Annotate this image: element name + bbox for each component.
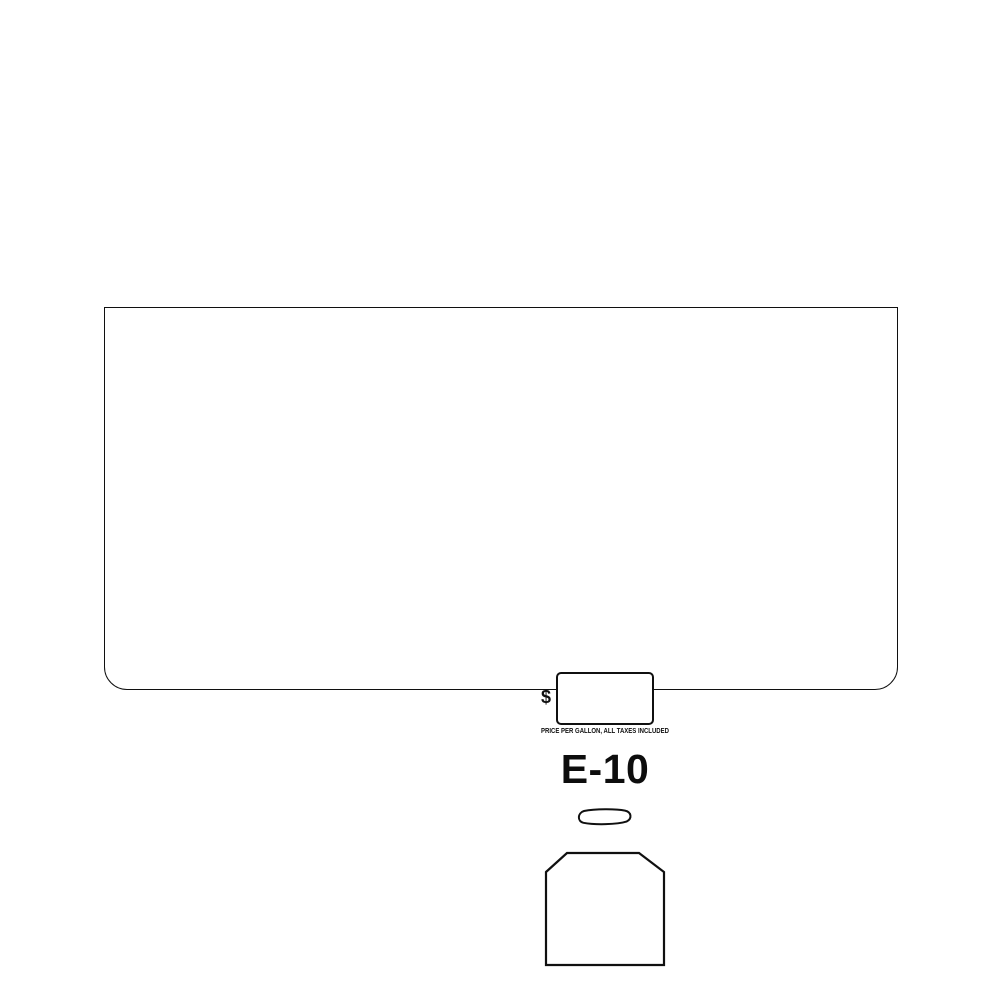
product-drawing-canvas: $ PRICE PER GALLON, ALL TAXES INCLUDED E… (0, 0, 1000, 1000)
pushbutton-cutout-icon (571, 804, 637, 830)
bezel-outline: $ PRICE PER GALLON, ALL TAXES INCLUDED E… (104, 307, 898, 690)
nozzle-boot-cutout-icon (541, 848, 671, 970)
price-caption: PRICE PER GALLON, ALL TAXES INCLUDED (485, 726, 725, 735)
grade-label: E-10 (455, 749, 755, 790)
dollar-sign: $ (529, 688, 551, 706)
price-display-window-cutout (556, 672, 654, 725)
